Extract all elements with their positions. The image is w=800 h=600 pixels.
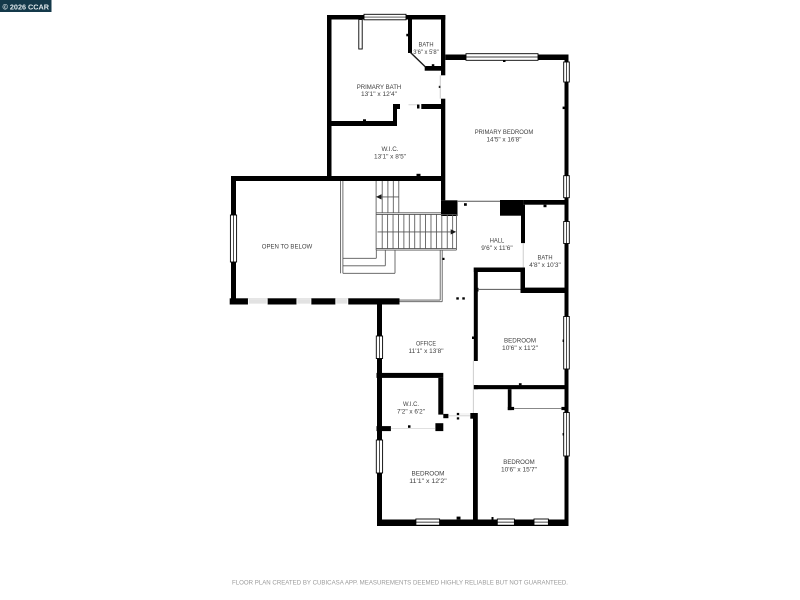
svg-text:HALL: HALL — [490, 237, 505, 244]
svg-text:PRIMARY BATH: PRIMARY BATH — [357, 84, 402, 91]
svg-text:BEDROOM: BEDROOM — [503, 459, 535, 466]
svg-text:BEDROOM: BEDROOM — [504, 338, 536, 345]
svg-text:© 2026 CCAR: © 2026 CCAR — [3, 2, 50, 11]
svg-text:3'6" x 5'8": 3'6" x 5'8" — [413, 49, 439, 56]
svg-text:14'5" x 16'8": 14'5" x 16'8" — [487, 136, 522, 143]
svg-text:BATH: BATH — [419, 42, 434, 49]
svg-text:4'8" x 10'3": 4'8" x 10'3" — [529, 262, 561, 269]
svg-text:13'1" x 12'4": 13'1" x 12'4" — [361, 91, 397, 98]
svg-text:BEDROOM: BEDROOM — [412, 470, 445, 477]
svg-text:10'6" x 11'2": 10'6" x 11'2" — [502, 345, 538, 352]
svg-text:OFFICE: OFFICE — [416, 340, 436, 347]
svg-text:13'1" x 8'5": 13'1" x 8'5" — [374, 154, 406, 161]
svg-text:11'1" x 12'2": 11'1" x 12'2" — [409, 478, 447, 485]
svg-text:9'6" x 11'6": 9'6" x 11'6" — [481, 245, 512, 252]
svg-text:W.I.C.: W.I.C. — [382, 146, 399, 153]
svg-text:11'1" x 13'8": 11'1" x 13'8" — [409, 348, 444, 355]
svg-text:BATH: BATH — [538, 255, 553, 262]
svg-text:7'2" x 6'2": 7'2" x 6'2" — [397, 408, 425, 415]
svg-text:10'6" x 15'7": 10'6" x 15'7" — [501, 466, 537, 473]
svg-text:W.I.C.: W.I.C. — [403, 401, 419, 408]
svg-text:OPEN TO BELOW: OPEN TO BELOW — [262, 244, 313, 251]
svg-text:PRIMARY BEDROOM: PRIMARY BEDROOM — [475, 129, 534, 136]
svg-text:FLOOR PLAN CREATED BY CUBICASA: FLOOR PLAN CREATED BY CUBICASA APP. MEAS… — [232, 580, 568, 587]
